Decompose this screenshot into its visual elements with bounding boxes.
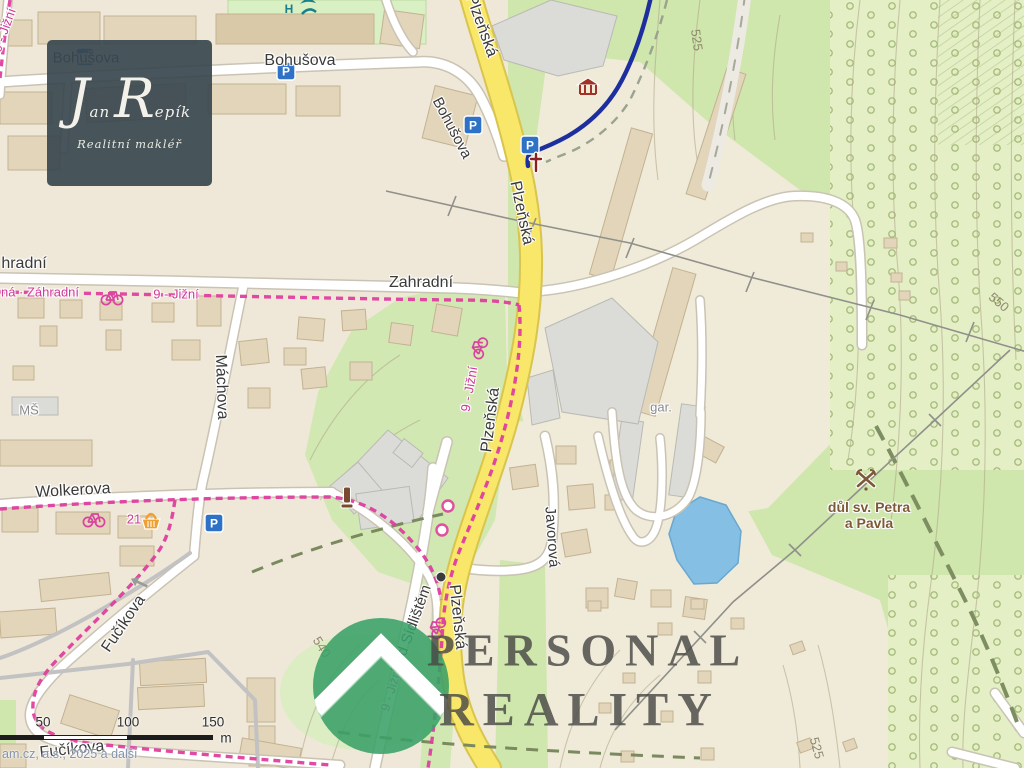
label-gar: gar. [650,400,672,415]
route-node [437,525,448,536]
green-patch [280,634,440,750]
map-canvas[interactable]: P P P P P [0,0,1024,768]
label-machova: Máchova [211,354,231,420]
scale-tick: 150 [202,715,225,730]
scale-seg [128,735,213,740]
initial-r: R [114,75,155,124]
label-hradni: hradní [1,255,46,273]
scale-seg [0,735,43,740]
label-jizni-1: 9 - Jižní [153,287,199,302]
scale-seg [43,735,128,740]
parking-icon: P [469,119,477,133]
initial-j: J [68,75,90,124]
parking-icon: P [526,139,534,153]
label-sports-h: H [285,2,294,16]
label-bohusova-h: Bohušova [264,52,335,70]
route-node [443,501,454,512]
orchard-2 [888,575,1024,768]
label-dul-line2: a Pavla [845,515,893,531]
parking-icon: P [210,517,218,531]
scale-tick: 50 [35,715,50,730]
green-strip [495,560,548,768]
label-zahradni: Zahradní [389,274,453,292]
map-attribution[interactable]: am.cz, a.s., 2025 a další [2,747,138,761]
scale-unit: m [220,731,231,746]
label-num21: 21 [127,512,141,527]
agent-name: JanRepík [68,75,191,124]
agent-logo: JanRepík Realitní makléř [47,40,212,186]
label-c525-top: 525 [688,28,706,52]
scale-tick: 100 [117,715,140,730]
forest-hatch [938,0,1024,145]
agent-subtitle: Realitní makléř [77,137,182,151]
label-dul-line1: důl sv. Petra [828,499,910,515]
label-ms: MŠ [19,403,39,418]
label-cyklo-zahradni: ná · Záhradní [1,285,79,300]
stop-dot[interactable] [436,572,446,582]
